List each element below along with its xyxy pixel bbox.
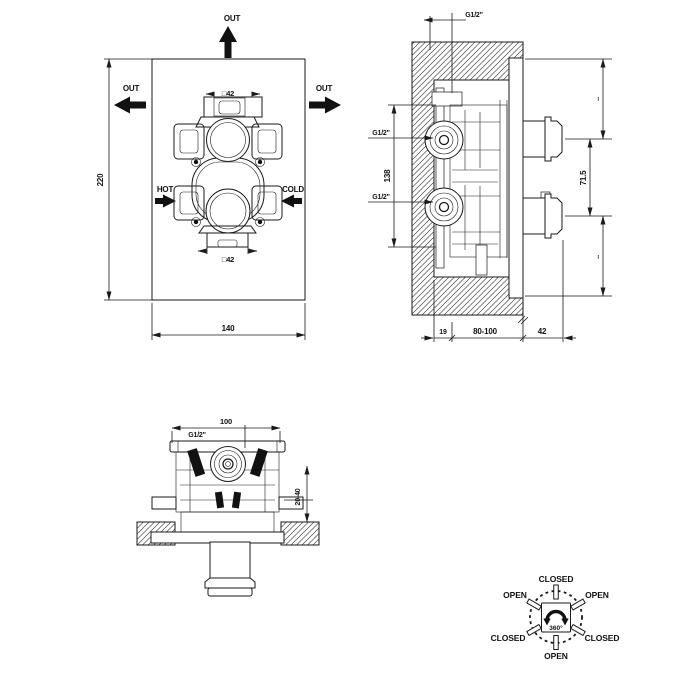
hot-arrow-icon <box>155 195 176 208</box>
side-dim-span: 138 <box>383 169 392 182</box>
top-dim-width: 100 <box>220 417 232 426</box>
top-handle <box>205 542 255 596</box>
side-wall-hatch <box>412 42 523 315</box>
side-dims-right <box>525 59 612 296</box>
front-dim-width: 140 <box>222 324 235 333</box>
rotation-diagram: 360° CLOSED OPEN OPEN CLOSED CLOSED OPEN <box>491 574 620 661</box>
top-outlet-port <box>211 447 246 482</box>
side-dim-equal-bottom: .. <box>592 255 601 259</box>
top-lower-boss-left <box>215 492 224 509</box>
top-mounting-plate <box>151 532 284 543</box>
side-valve-body <box>425 88 507 275</box>
side-dim-thread-lower: G1/2" <box>372 194 390 201</box>
pos-bottom-label: OPEN <box>544 651 568 661</box>
top-lower-boss-right <box>232 492 241 509</box>
side-lower-cartridge <box>425 188 463 226</box>
pos-top-right-label: OPEN <box>585 590 609 600</box>
top-view: 100 G1/2" 20-40 <box>137 417 319 596</box>
out-top-label: OUT <box>224 14 241 23</box>
technical-drawing-sheet: OUT OUT OUT HOT COLD <box>0 0 700 700</box>
top-dim-adjust-range: 20-40 <box>295 488 302 505</box>
pos-bottom-left-label: CLOSED <box>491 633 526 643</box>
side-view: G1/2" G1/2" G1/2" 138 .. 71.5 .. <box>368 12 612 342</box>
front-valve-body <box>174 94 282 254</box>
front-upper-cartridge <box>207 119 250 162</box>
side-dim-handle-gap: 71.5 <box>579 170 588 186</box>
drawing-svg: OUT OUT OUT HOT COLD <box>0 0 700 700</box>
side-dim-protrusion: 42 <box>538 327 547 336</box>
side-top-port <box>432 92 462 106</box>
out-left-arrow-icon <box>114 97 146 114</box>
rotation-angle-label: 360° <box>549 624 563 632</box>
top-wall-hatch-right <box>281 522 319 545</box>
side-dim-thread-upper: G1/2" <box>372 130 390 137</box>
side-dim-recess-range: 80-100 <box>473 327 497 336</box>
out-right-label: OUT <box>316 84 333 93</box>
side-bottom-stem <box>476 245 487 275</box>
out-top-arrow-icon <box>219 26 237 58</box>
front-dim-height: 220 <box>96 173 105 186</box>
side-mounting-plate <box>509 58 523 298</box>
hot-label: HOT <box>157 185 174 194</box>
out-left-label: OUT <box>123 84 140 93</box>
side-dim-thread-top: G1/2" <box>465 12 483 19</box>
front-view: OUT OUT OUT HOT COLD <box>96 14 341 340</box>
pos-bottom-right-label: CLOSED <box>585 633 620 643</box>
side-dim-equal-top: .. <box>592 97 601 101</box>
front-dim-square-top: □42 <box>222 89 234 98</box>
side-dim-wall-min: 19 <box>439 329 447 336</box>
pos-top-label: CLOSED <box>539 574 574 584</box>
side-upper-handle <box>523 117 562 161</box>
side-upper-cartridge <box>425 121 463 159</box>
pos-top-left-label: OPEN <box>503 590 527 600</box>
cold-arrow-icon <box>281 195 302 208</box>
top-side-tab-left <box>152 497 176 509</box>
top-dim-thread: G1/2" <box>188 432 206 439</box>
out-right-arrow-icon <box>309 97 341 114</box>
side-lower-handle <box>523 192 562 238</box>
cold-label: COLD <box>282 185 304 194</box>
front-dim-square-bottom: □42 <box>222 255 234 264</box>
top-valve-body <box>152 441 303 532</box>
